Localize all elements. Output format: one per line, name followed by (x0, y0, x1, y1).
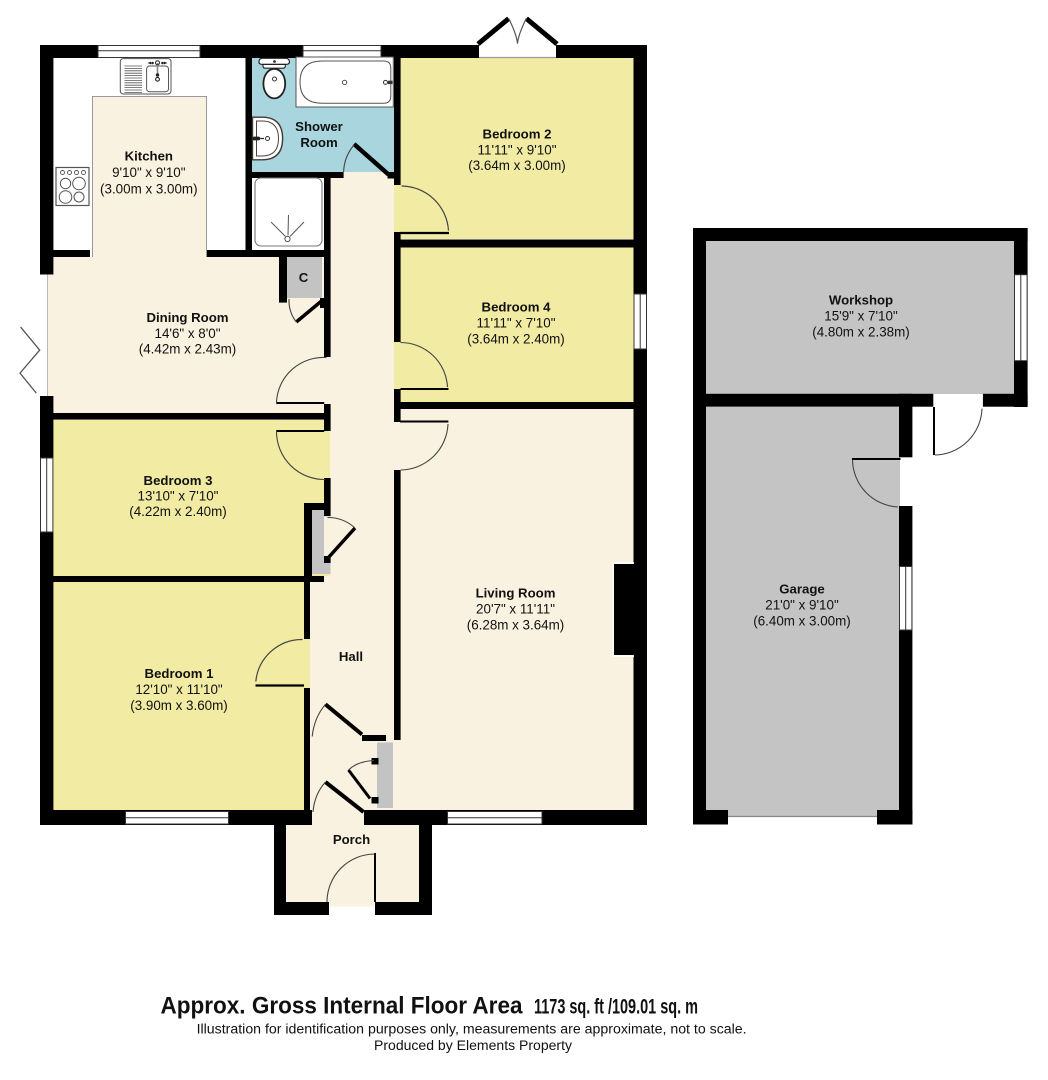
svg-text:Dining Room: Dining Room (146, 310, 228, 325)
svg-text:(3.64m x 2.40m): (3.64m x 2.40m) (467, 332, 565, 347)
svg-text:9'10" x 9'10": 9'10" x 9'10" (112, 165, 186, 180)
svg-text:15'9" x 7'10": 15'9" x 7'10" (824, 309, 898, 324)
svg-text:11'11" x 7'10": 11'11" x 7'10" (477, 316, 556, 331)
svg-text:(3.00m x 3.00m): (3.00m x 3.00m) (100, 182, 198, 197)
svg-text:(4.80m x 2.38m): (4.80m x 2.38m) (812, 325, 910, 340)
svg-text:C: C (299, 270, 309, 285)
svg-text:13'10" x 7'10": 13'10" x 7'10" (138, 489, 219, 504)
svg-text:Produced by Elements Property: Produced by Elements Property (374, 1037, 572, 1053)
svg-text:Porch: Porch (333, 832, 370, 847)
svg-text:(4.42m x 2.43m): (4.42m x 2.43m) (139, 342, 237, 357)
svg-text:(6.28m x 3.64m): (6.28m x 3.64m) (467, 618, 565, 633)
svg-text:Bedroom 2: Bedroom 2 (483, 127, 552, 142)
svg-text:Illustration for identificatio: Illustration for identification purposes… (197, 1022, 747, 1038)
svg-text:Bedroom 3: Bedroom 3 (144, 473, 213, 488)
svg-text:Bedroom 1: Bedroom 1 (145, 666, 214, 681)
svg-text:1173 sq. ft /109.01 sq. m: 1173 sq. ft /109.01 sq. m (534, 995, 698, 1018)
svg-text:20'7" x 11'11": 20'7" x 11'11" (476, 602, 555, 617)
svg-text:(3.64m x 3.00m): (3.64m x 3.00m) (468, 158, 566, 173)
svg-text:(6.40m x 3.00m): (6.40m x 3.00m) (753, 614, 851, 629)
svg-text:12'10" x 11'10": 12'10" x 11'10" (135, 682, 223, 697)
svg-text:Shower: Shower (295, 119, 343, 134)
svg-text:Approx. Gross Internal Floor A: Approx. Gross Internal Floor Area (161, 992, 524, 1019)
svg-text:Hall: Hall (339, 649, 363, 664)
svg-text:14'6" x 8'0": 14'6" x 8'0" (155, 326, 221, 341)
svg-text:Bedroom 4: Bedroom 4 (482, 300, 552, 315)
svg-text:Kitchen: Kitchen (125, 149, 173, 164)
svg-text:Garage: Garage (779, 582, 824, 597)
svg-text:Workshop: Workshop (829, 293, 893, 308)
svg-text:11'11" x 9'10": 11'11" x 9'10" (478, 142, 557, 157)
svg-text:(4.22m x 2.40m): (4.22m x 2.40m) (129, 504, 227, 519)
svg-text:Living Room: Living Room (476, 586, 556, 601)
svg-text:21'0" x 9'10": 21'0" x 9'10" (765, 598, 839, 613)
svg-text:(3.90m x 3.60m): (3.90m x 3.60m) (130, 698, 228, 713)
svg-text:Room: Room (300, 135, 337, 150)
